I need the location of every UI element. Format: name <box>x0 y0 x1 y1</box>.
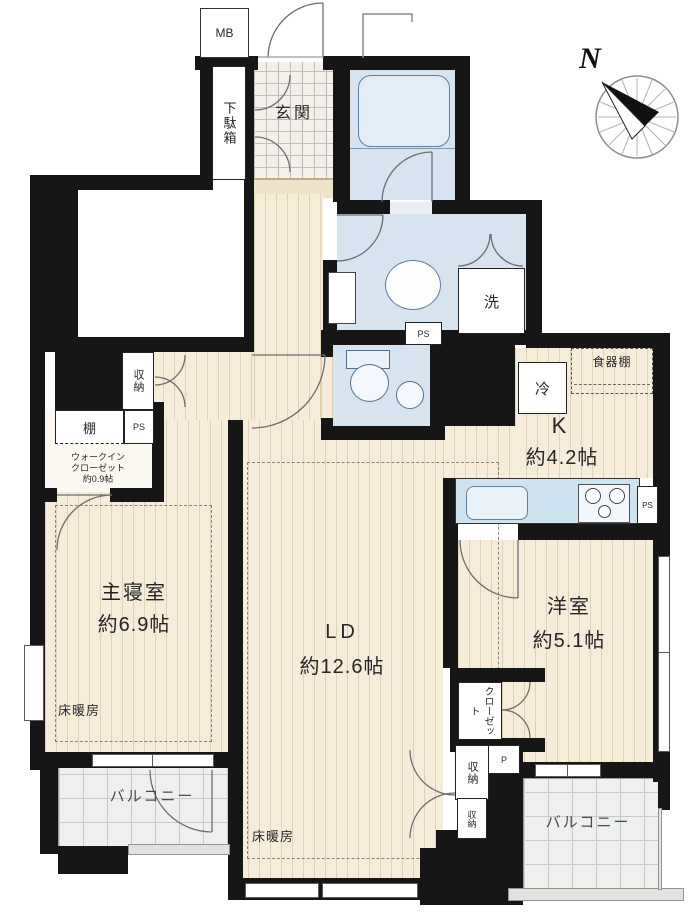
wic-label-size: 約0.9帖 <box>83 474 114 485</box>
entrance-label: 玄関 <box>252 100 336 122</box>
wic-label: ウォークイン クローゼット 約0.9帖 <box>42 446 154 490</box>
western-room-name: 洋室 <box>524 590 614 618</box>
wic-door-arc <box>57 495 112 550</box>
compass-icon <box>596 76 678 158</box>
floor-heating-label-ld: 床暖房 <box>252 826 310 844</box>
bedroom-door-arc <box>252 355 325 428</box>
ld-storage-door-arc <box>410 793 455 838</box>
living-dining-name: LD <box>308 618 376 646</box>
kitchen-name: K <box>541 412 579 440</box>
floor-plan: MB 下駄箱 洗 PS 冷 食器棚 PS 収納 棚 PS クローゼット 収納 <box>0 0 699 921</box>
master-bedroom-name: 主寝室 <box>76 576 192 604</box>
wic-label-line1: ウォークイン <box>71 452 125 463</box>
master-bedroom-size: 約6.9帖 <box>76 608 192 636</box>
exterior-line <box>363 14 412 58</box>
western-room-size: 約5.1帖 <box>510 624 628 652</box>
living-dining-size: 約12.6帖 <box>276 650 408 678</box>
balcony-left-label: バルコニー <box>84 784 220 806</box>
balcony-right-label: バルコニー <box>524 810 652 832</box>
floor-heating-label-bedroom: 床暖房 <box>58 700 116 718</box>
closet-door-arc <box>502 682 530 710</box>
wic-label-line2: クローゼット <box>71 463 125 474</box>
compass-north-label: N <box>570 42 610 76</box>
kitchen-size: 約4.2帖 <box>505 442 619 468</box>
closet-door-arc <box>502 710 530 738</box>
bathroom-door-arc <box>382 152 432 202</box>
entrance-door-arc <box>268 3 323 58</box>
shoe-cabinet-door-arc <box>255 137 290 172</box>
ld-storage-door-arc <box>410 750 455 795</box>
western-room-door-arc <box>460 540 518 598</box>
washer-door-arc <box>491 234 523 266</box>
washroom-door-arc <box>337 215 383 261</box>
washer-door-arc <box>458 234 490 266</box>
hall-storage-door-arc <box>155 377 185 407</box>
